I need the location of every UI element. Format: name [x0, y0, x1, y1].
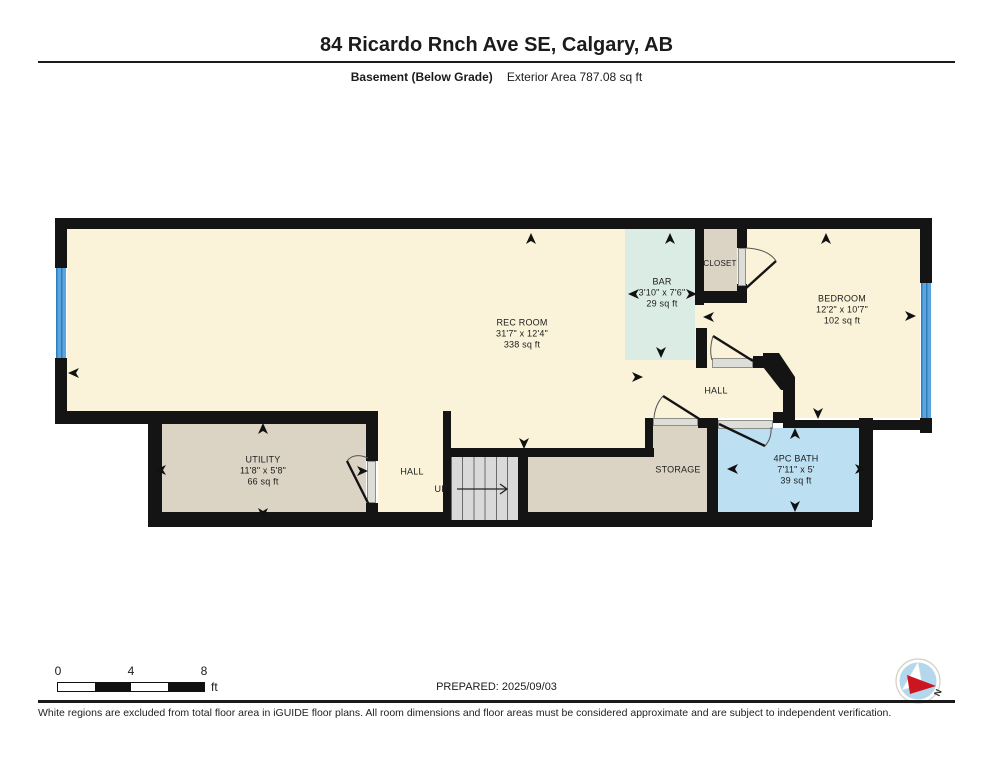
wall-segment	[920, 229, 932, 283]
wall-segment	[707, 418, 718, 520]
wall-segment	[753, 356, 777, 368]
room-dims: 31'7" x 12'4"	[496, 329, 548, 340]
room-dims: 12'2" x 10'7"	[816, 305, 868, 316]
room-area: 39 sq ft	[774, 475, 819, 486]
room-dims: 3'10" x 7'6"	[639, 288, 686, 299]
wall-segment	[737, 229, 747, 248]
window-bedroom-icon	[921, 283, 931, 418]
wall-segment	[518, 448, 528, 520]
door-sill-storage	[653, 418, 698, 426]
room-label-storage: STORAGE	[655, 465, 700, 476]
room-hall-upper-extension	[378, 411, 645, 448]
door-sill-bedroom	[712, 358, 753, 368]
room-dims: 11'8" x 5'8"	[240, 466, 286, 477]
room-label-hall-lower: HALL	[400, 467, 423, 478]
door-sill-bath	[718, 420, 773, 429]
room-name: BEDROOM	[816, 294, 868, 305]
wall-segment	[773, 412, 795, 423]
room-label-hall-upper: HALL	[704, 386, 727, 397]
prepared-date: PREPARED: 2025/09/03	[0, 681, 993, 693]
scale-tick: 4	[128, 664, 135, 678]
room-area: 338 sq ft	[496, 339, 548, 350]
wall-segment	[366, 411, 378, 461]
wall-segment	[366, 503, 378, 515]
room-label-bar: BAR 3'10" x 7'6" 29 sq ft	[639, 277, 686, 310]
room-area: 102 sq ft	[816, 315, 868, 326]
room-hall-lower	[378, 448, 443, 512]
wall-segment	[696, 328, 707, 368]
room-area: 29 sq ft	[639, 298, 686, 309]
room-label-utility: UTILITY 11'8" x 5'8" 66 sq ft	[240, 455, 286, 488]
staircase	[451, 457, 518, 520]
room-storage-arm	[653, 426, 707, 457]
wall-segment	[443, 411, 451, 520]
stairs-up-label: UP	[434, 484, 447, 494]
floorplan-page: { "header": { "title": "84 Ricardo Rnch …	[0, 0, 993, 768]
room-name: UTILITY	[240, 455, 286, 466]
wall-segment	[645, 418, 653, 457]
scale-tick: 8	[201, 664, 208, 678]
wall-segment	[737, 284, 747, 303]
room-label-closet: CLOSET	[703, 259, 736, 269]
room-name: HALL	[704, 386, 727, 397]
footer-divider	[38, 700, 955, 703]
room-dims: 7'11" x 5'	[774, 465, 819, 476]
room-name: REC ROOM	[496, 318, 548, 329]
floorplan-canvas: REC ROOM 31'7" x 12'4" 338 sq ft BAR 3'1…	[0, 0, 993, 768]
door-sill-closet	[738, 248, 746, 286]
room-name: HALL	[400, 467, 423, 478]
disclaimer-text: White regions are excluded from total fl…	[38, 707, 955, 719]
wall-segment	[695, 291, 742, 303]
room-area: 66 sq ft	[240, 476, 286, 487]
room-label-bedroom: BEDROOM 12'2" x 10'7" 102 sq ft	[816, 294, 868, 327]
wall-segment	[55, 411, 378, 424]
room-label-bath: 4PC BATH 7'11" x 5' 39 sq ft	[774, 454, 819, 487]
room-name: 4PC BATH	[774, 454, 819, 465]
wall-segment	[55, 218, 932, 229]
room-label-rec-room: REC ROOM 31'7" x 12'4" 338 sq ft	[496, 318, 548, 351]
wall-segment	[859, 418, 873, 520]
wall-segment	[148, 411, 162, 527]
wall-segment	[444, 448, 654, 457]
door-sill-utility	[367, 461, 376, 503]
room-name: STORAGE	[655, 465, 700, 476]
room-name: CLOSET	[703, 259, 736, 269]
window-rec-room-icon	[56, 268, 66, 358]
scale-tick: 0	[55, 664, 62, 678]
wall-segment	[55, 229, 67, 268]
room-name: BAR	[639, 277, 686, 288]
